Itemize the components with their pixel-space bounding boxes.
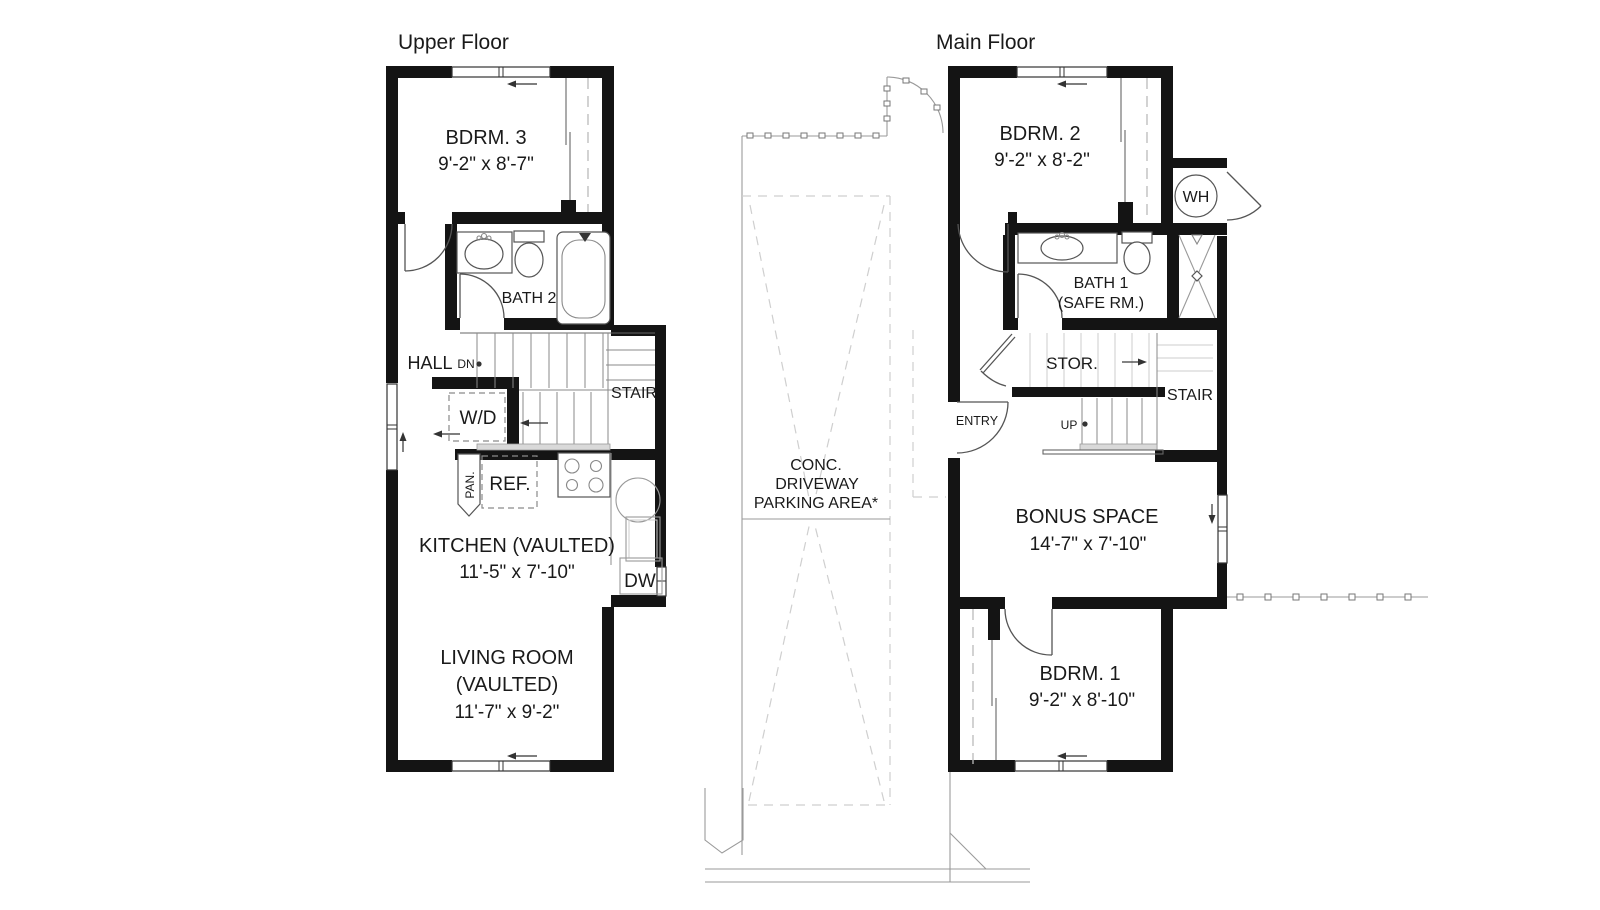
water-heater: WH [1175,175,1217,217]
window [1017,67,1107,77]
water-heater-door [1227,172,1261,220]
stove [558,453,610,497]
fence [742,133,887,138]
driveway-label-3: PARKING AREA* [754,495,878,512]
vanity-sink [1018,233,1117,264]
main-floor-plan: Main Floor [936,31,1428,772]
main-floor-title: Main Floor [936,31,1035,54]
ref-label: REF. [489,474,530,495]
stair-label-main: STAIR [1167,387,1213,404]
room-label-bath1: BATH 1 [1074,275,1129,292]
room-dims-bonus: 14'-7" x 7'-10" [1030,534,1147,555]
stair-direction-arrow [1122,359,1147,366]
wd-door-arrow [433,431,460,438]
bath2-fixtures [457,231,610,324]
window [452,67,550,77]
floor-plan-drawing: Upper Floor [0,0,1600,905]
room-label-stor: STOR. [1046,354,1098,373]
window [1015,761,1107,771]
stair-label-upper: STAIR [611,385,657,402]
room-label-living-sub: (VAULTED) [456,674,559,696]
driveway-arrow [705,788,743,853]
closet-bdrm2 [1121,78,1147,215]
upper-floor-plan: Upper Floor [386,31,666,772]
room-label-bdrm1: BDRM. 1 [1039,663,1120,685]
floor-plan-canvas: Upper Floor [0,0,1600,905]
room-label-bdrm3: BDRM. 3 [445,127,526,149]
room-label-bdrm2: BDRM. 2 [999,123,1080,145]
room-dims-bdrm1: 9'-2" x 8'-10" [1029,690,1135,711]
entry-label: ENTRY [956,414,999,428]
side-fence [1227,594,1428,600]
room-label-bath1-sub: (SAFE RM.) [1058,295,1144,312]
bdrm2-door [958,224,1008,272]
shower [1179,235,1215,318]
window [387,384,397,470]
street-lines [705,772,1030,882]
up-dot [1082,421,1087,426]
pantry-label: PAN. [463,471,477,498]
room-dims-living: 11'-7" x 9'-2" [455,702,560,723]
room-dims-kitchen: 11'-5" x 7'-10" [459,562,574,583]
closet-bdrm3 [566,78,588,212]
storage-door [980,334,1015,386]
kitchen-sink [616,478,660,561]
driveway-label-1: CONC. [790,457,842,474]
driveway-label-2: DRIVEWAY [775,476,859,493]
upper-floor-title: Upper Floor [398,31,509,54]
stair-direction-arrow [520,420,548,427]
stair-dn-label: DN [457,357,474,371]
room-dims-bdrm2: 9'-2" x 8'-2" [994,150,1090,171]
bath2-door [460,274,504,318]
room-label-hall: HALL [407,353,452,373]
dn-dot [476,361,481,366]
room-label-living: LIVING ROOM [440,647,573,669]
toilet [1122,232,1152,274]
stair-up-label: UP [1061,418,1078,432]
dw-label: DW [624,571,656,592]
gate [884,77,943,136]
room-label-bonus: BONUS SPACE [1016,506,1159,528]
room-label-kitchen: KITCHEN (VAULTED) [419,535,615,557]
vanity-sink [457,232,512,273]
bdrm3-door [405,224,452,271]
bdrm1-door [1005,609,1052,655]
window [452,761,550,771]
wh-label: WH [1183,189,1210,206]
window [1218,495,1227,563]
room-dims-bdrm3: 9'-2" x 8'-7" [438,154,534,175]
toilet [514,231,544,277]
bathtub [557,232,610,324]
bath1-door [1018,274,1062,318]
room-label-bath2: BATH 2 [502,290,557,307]
wd-label: W/D [460,408,497,429]
